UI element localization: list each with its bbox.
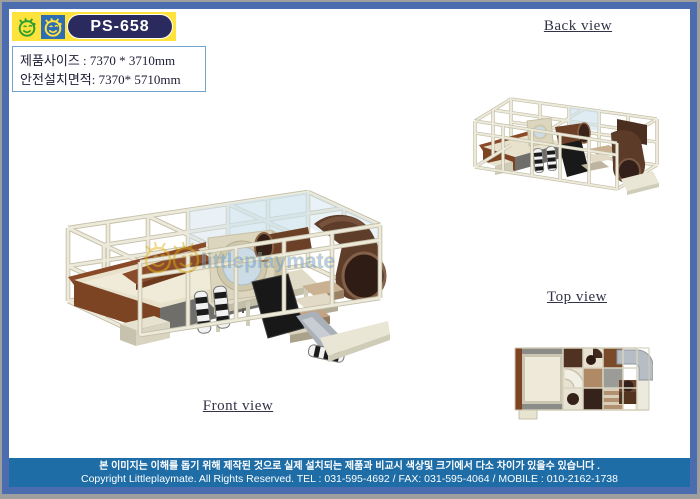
logo-bar: PS-658 xyxy=(12,12,176,41)
top-view-illustration xyxy=(505,336,653,433)
smiley-face-green-icon xyxy=(15,15,39,39)
page-background: PS-658 제품사이즈 : 7370 * 3710mm 안전설치면적: 737… xyxy=(0,0,700,499)
ball-pit-top xyxy=(515,348,563,410)
back-view-label: Back view xyxy=(518,18,638,35)
spec-size-line: 제품사이즈 : 7370 * 3710mm xyxy=(20,51,205,70)
sheet-frame: PS-658 제품사이즈 : 7370 * 3710mm 안전설치면적: 737… xyxy=(2,2,697,494)
footer-bar: 본 이미지는 이해를 돕기 위해 제작된 것으로 실제 설치되는 제품과 비교시… xyxy=(9,458,690,487)
smiley-face-blue-icon xyxy=(41,15,65,39)
back-view-illustration xyxy=(471,91,663,219)
model-badge: PS-658 xyxy=(67,14,173,39)
spec-area-line: 안전설치면적: 7370* 5710mm xyxy=(20,70,205,89)
front-view-illustration: littleplaymate xyxy=(58,180,390,388)
entry-step-top xyxy=(519,410,537,419)
spec-info-box: 제품사이즈 : 7370 * 3710mm 안전설치면적: 7370* 5710… xyxy=(12,46,206,92)
top-view-label: Top view xyxy=(517,289,637,306)
footer-disclaimer: 본 이미지는 이해를 돕기 위해 제작된 것으로 실제 설치되는 제품과 비교시… xyxy=(9,461,690,473)
watermark-text: littleplaymate xyxy=(201,250,335,273)
footer-copyright: Copyright Littleplaymate. All Rights Res… xyxy=(9,473,690,486)
front-view-label: Front view xyxy=(178,398,298,415)
